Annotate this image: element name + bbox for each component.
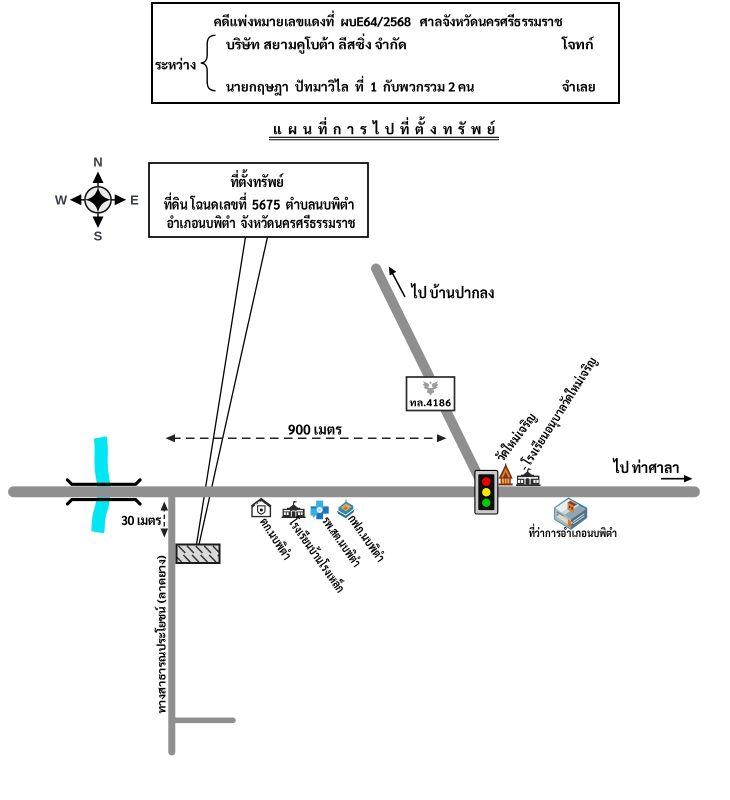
svg-text:E: E xyxy=(130,192,139,207)
svg-text:N: N xyxy=(93,155,102,170)
svg-text:W: W xyxy=(55,192,68,207)
svg-text:S: S xyxy=(94,229,103,244)
